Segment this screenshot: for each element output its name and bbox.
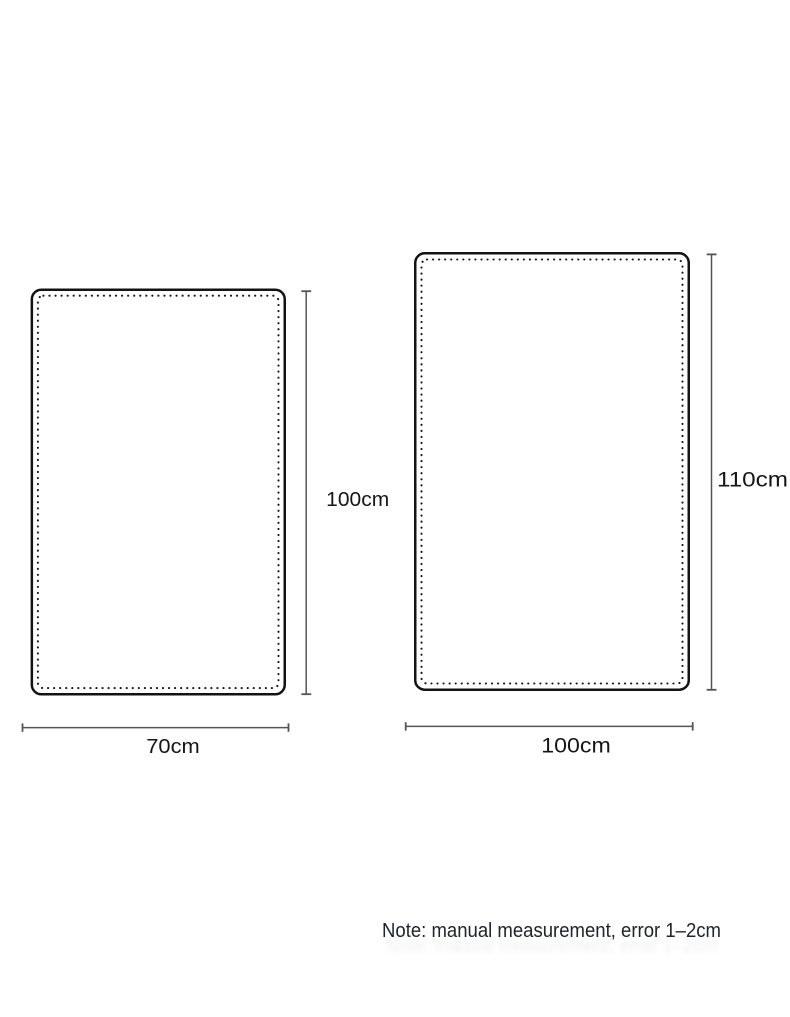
svg-text:Note: manual measurement, erro: Note: manual measurement, error 1–2cm <box>382 919 721 942</box>
svg-text:110cm: 110cm <box>717 467 788 491</box>
svg-text:100cm: 100cm <box>326 489 389 511</box>
svg-text:70cm: 70cm <box>146 736 200 758</box>
svg-text:100cm: 100cm <box>541 734 611 758</box>
